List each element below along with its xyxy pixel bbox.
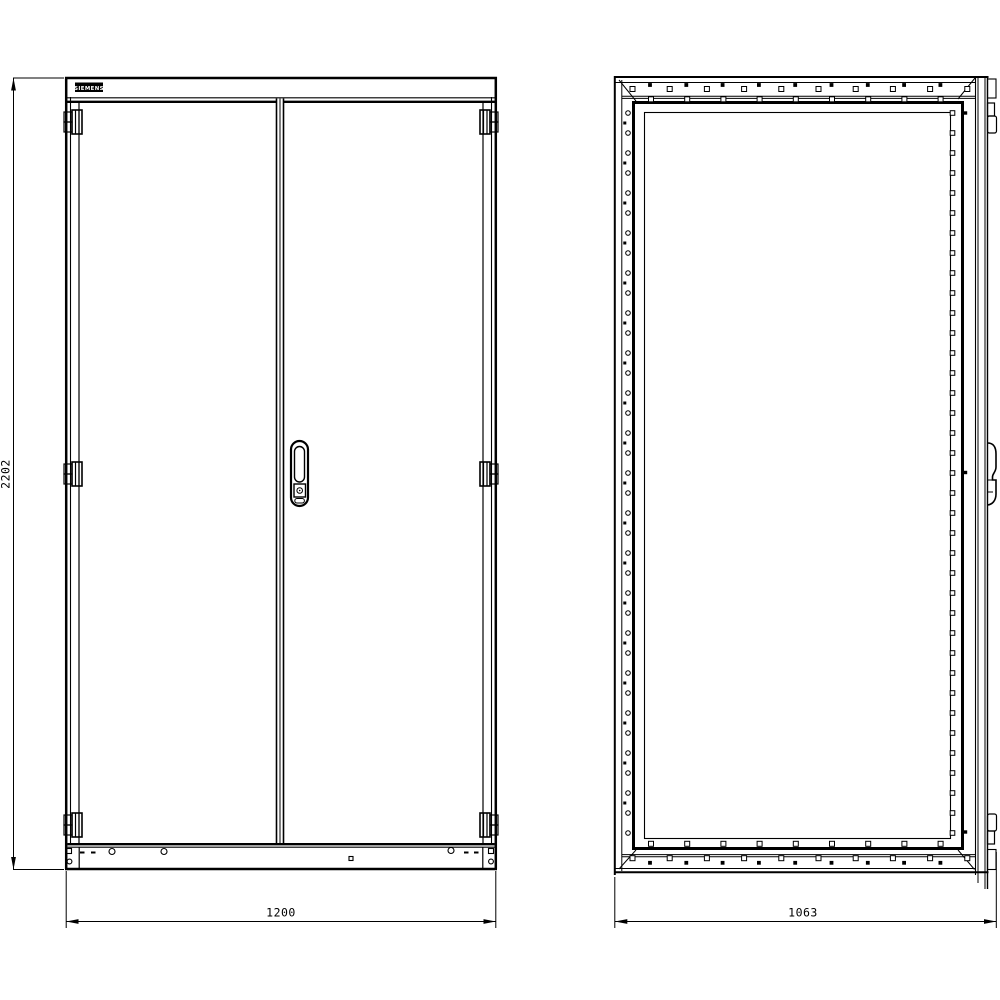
inner-panel <box>645 113 951 839</box>
side-outline <box>614 76 989 875</box>
door-top-cap <box>988 79 997 98</box>
depth-dimension-label: 1063 <box>788 906 818 920</box>
technical-drawing-canvas: 2202 SIEMENS <box>0 0 1000 1000</box>
door-bottom-cap <box>988 850 997 870</box>
height-dimension-label: 2202 <box>0 459 13 489</box>
front-view: 2202 SIEMENS <box>0 77 498 928</box>
enclosure-drawing: 2202 SIEMENS <box>0 0 1000 1000</box>
perforation-column-right <box>950 111 967 836</box>
front-doors <box>68 99 495 845</box>
logo-text: SIEMENS <box>74 86 104 92</box>
handle-grip-slot <box>295 447 305 483</box>
width-dimension-label: 1200 <box>266 906 296 920</box>
plinth-holes <box>67 848 494 864</box>
front-plinth <box>67 847 495 868</box>
perforation-row-bottom <box>630 841 970 864</box>
side-view: 1063 <box>614 76 997 928</box>
brand-logo: SIEMENS <box>74 83 104 93</box>
side-hinge-top <box>988 103 997 133</box>
perforation-column-left <box>624 111 631 836</box>
handle-bottom-detail <box>295 499 305 504</box>
side-door-profile <box>976 77 997 889</box>
front-cabinet-outline <box>65 77 497 869</box>
mounting-frame <box>634 103 963 849</box>
perforation-row-top <box>630 84 970 102</box>
door-handle <box>291 441 308 506</box>
front-width-dimension: 1200 <box>66 871 496 928</box>
front-height-dimension: 2202 <box>0 78 64 870</box>
side-handle-profile <box>988 443 997 505</box>
side-hinge-bottom <box>988 814 997 844</box>
